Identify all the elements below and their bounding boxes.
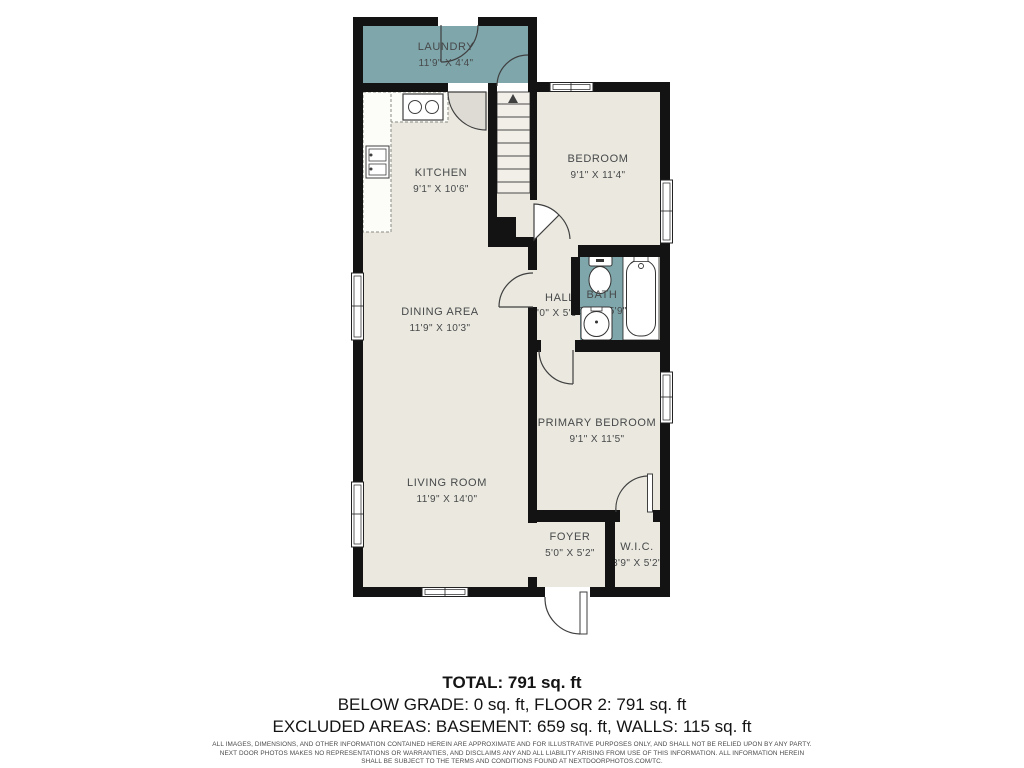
door-front-entry — [545, 588, 590, 634]
window — [661, 180, 673, 243]
faucet-dot-icon — [370, 154, 372, 156]
disclaimer-text: ALL IMAGES, DIMENSIONS, AND OTHER INFORM… — [0, 741, 1024, 767]
floor-plan-drawing: LAUNDRY 11'9" X 4'4" KITCHEN 9'1" X 10'6… — [0, 0, 1024, 768]
wall-laundry-right — [528, 17, 537, 92]
stove — [403, 94, 443, 120]
wall-hall-bath-divider — [571, 257, 580, 315]
bathtub-faucet-icon — [634, 257, 648, 262]
room-label: LIVING ROOM — [407, 477, 487, 489]
room-dims: 3'9" X 5'2" — [612, 558, 662, 569]
area-summary: TOTAL: 791 sq. ft BELOW GRADE: 0 sq. ft,… — [0, 672, 1024, 767]
kitchen-sink — [366, 146, 389, 178]
bath-sink — [581, 307, 612, 340]
wall-foyer-left-stub — [528, 577, 537, 587]
laundry-floor — [363, 26, 528, 83]
room-dims: 5'0" X 5'2" — [545, 548, 595, 559]
window — [550, 83, 593, 92]
room-label: HALL — [545, 292, 575, 304]
staircase — [497, 92, 530, 193]
room-label: PRIMARY BEDROOM — [538, 417, 657, 429]
room-label: DINING AREA — [401, 306, 479, 318]
wall-mid-divider — [528, 307, 537, 523]
wall-foyer-wic-divider — [605, 522, 615, 587]
wall-laundry-top-left — [353, 17, 438, 26]
toilet-lid-icon — [596, 259, 604, 262]
room-dims: 11'9" X 4'4" — [418, 58, 473, 69]
bath-sink-tap-icon — [591, 307, 602, 311]
excluded-areas-text: EXCLUDED AREAS: BASEMENT: 659 sq. ft, WA… — [0, 716, 1024, 738]
floor-plan-page: LAUNDRY 11'9" X 4'4" KITCHEN 9'1" X 10'6… — [0, 0, 1024, 768]
wall-laundry-bottom-stub — [488, 83, 497, 92]
bathtub-basin — [627, 260, 656, 336]
wall-bedroom-top-right — [593, 82, 670, 92]
window — [352, 273, 364, 340]
wall-stair-left — [488, 92, 497, 247]
wall-laundry-bottom — [353, 83, 448, 92]
faucet-dot-icon — [370, 168, 372, 170]
grade-floor-text: BELOW GRADE: 0 sq. ft, FLOOR 2: 791 sq. … — [0, 694, 1024, 716]
wall-understair-block — [497, 217, 516, 237]
wall-bottom-3 — [590, 587, 670, 597]
room-label: W.I.C. — [620, 541, 654, 553]
wall-bedroom-bath — [578, 245, 670, 257]
room-label: FOYER — [550, 531, 591, 543]
room-dims: 9'1" X 11'4" — [570, 170, 625, 181]
disclaimer-line: SHALL BE SUBJECT TO THE TERMS AND CONDIT… — [0, 758, 1024, 767]
total-area-text: TOTAL: 791 sq. ft — [0, 672, 1024, 694]
disclaimer-line: NEXT DOOR PHOTOS MAKES NO REPRESENTATION… — [0, 750, 1024, 759]
room-label: LAUNDRY — [418, 41, 475, 53]
wall-primary-wic-stub — [653, 510, 670, 522]
wall-bottom-2 — [468, 587, 545, 597]
wall-bath-primary — [575, 340, 670, 352]
room-dims: 11'9" X 10'3" — [410, 323, 471, 334]
toilet — [589, 256, 612, 294]
room-label: BEDROOM — [567, 153, 628, 165]
room-dims: 9'1" X 10'6" — [413, 184, 469, 195]
bath-sink-basin — [584, 312, 609, 337]
room-dims: 11'9" X 14'0" — [417, 494, 478, 505]
room-label: KITCHEN — [415, 167, 467, 179]
bathtub — [623, 256, 659, 340]
window — [352, 482, 364, 547]
wall-stair-right — [530, 92, 537, 200]
window — [661, 372, 673, 423]
disclaimer-line: ALL IMAGES, DIMENSIONS, AND OTHER INFORM… — [0, 741, 1024, 750]
faucet-dot-icon — [595, 321, 598, 324]
wall-bottom-1 — [353, 587, 422, 597]
wall-hall-left-upper — [528, 237, 537, 270]
window — [422, 588, 468, 597]
room-dims: 9'1" X 11'5" — [569, 434, 624, 445]
wall-bedroom-top-left — [528, 82, 550, 92]
wall-primary-foyer — [528, 510, 620, 522]
room-label: BATH — [587, 289, 618, 301]
